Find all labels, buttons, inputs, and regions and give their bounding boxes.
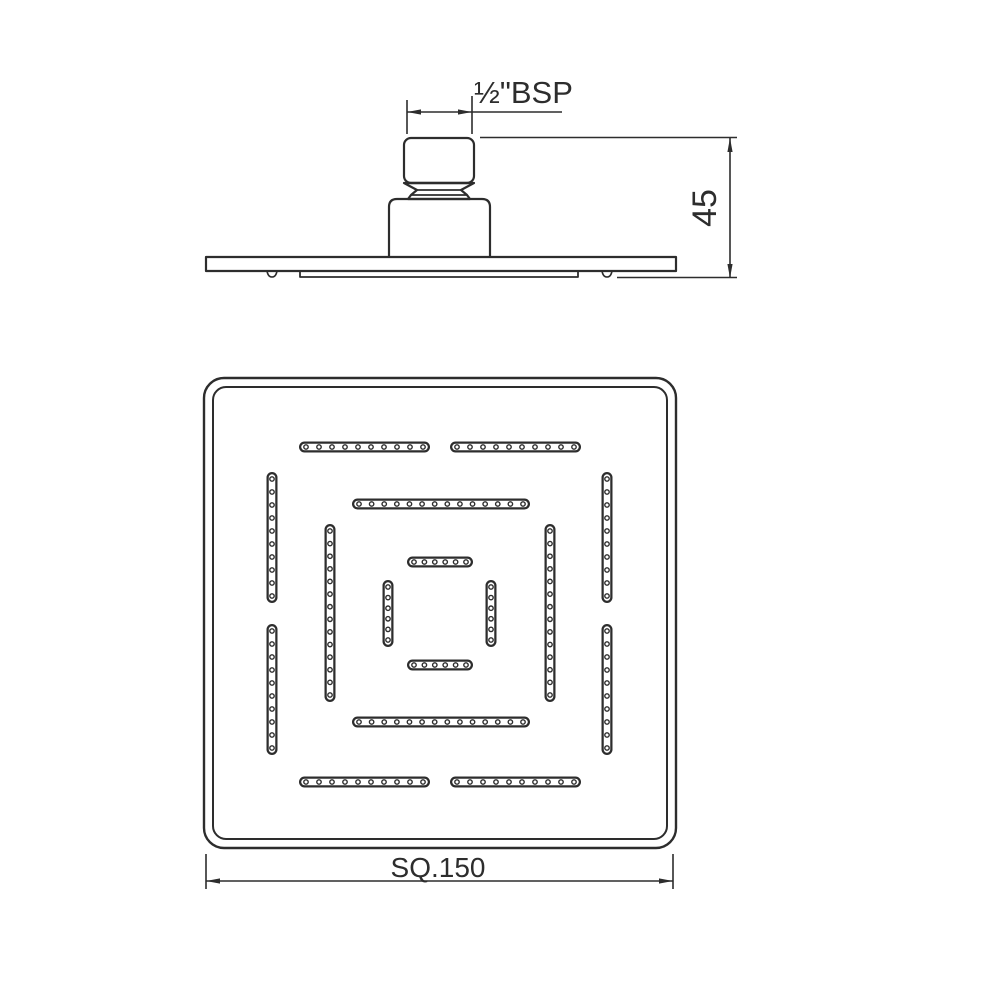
body-block <box>389 199 490 258</box>
nozzle-hole <box>468 445 472 449</box>
nozzle-hole <box>605 516 609 520</box>
nozzle-hole <box>489 638 493 642</box>
nozzle-hole <box>395 445 399 449</box>
nozzle-strip <box>605 629 609 750</box>
nozzle-hole <box>407 720 411 724</box>
nozzle-hole <box>508 502 512 506</box>
nozzle-strip <box>455 445 576 449</box>
nozzle-hole <box>605 694 609 698</box>
nozzle-hole <box>328 541 332 545</box>
nozzle-hole <box>270 720 274 724</box>
nozzle-hole <box>605 681 609 685</box>
nozzle-hole <box>270 668 274 672</box>
nozzle-strip <box>270 477 274 598</box>
nozzle-hole <box>443 663 447 667</box>
nozzle-hole <box>328 642 332 646</box>
nozzle-hole <box>433 663 437 667</box>
nozzle-hole <box>270 733 274 737</box>
nozzle-hole <box>422 663 426 667</box>
nozzle-hole <box>548 541 552 545</box>
width-arrow-left <box>206 878 220 883</box>
nozzle-hole <box>328 668 332 672</box>
nozzle-hole <box>489 585 493 589</box>
nozzle-hole <box>605 655 609 659</box>
nozzle-hole <box>507 780 511 784</box>
nozzle-hole <box>270 694 274 698</box>
drawing-page: ½"BSP 45 SQ.150 <box>0 0 1000 1000</box>
nozzle-hole <box>455 780 459 784</box>
nozzle-strip <box>412 663 468 667</box>
nozzle-hole <box>605 529 609 533</box>
nozzle-hole <box>343 780 347 784</box>
nozzle-hole <box>412 663 416 667</box>
nozzle-hole <box>605 503 609 507</box>
nozzle-hole <box>270 642 274 646</box>
nozzle-hole <box>605 477 609 481</box>
nozzle-hole <box>489 627 493 631</box>
nozzle-hole <box>548 579 552 583</box>
nozzle-hole <box>496 502 500 506</box>
nozzle-hole <box>548 617 552 621</box>
nozzle-hole <box>328 579 332 583</box>
nozzle-hole <box>382 780 386 784</box>
nozzle-hole <box>548 642 552 646</box>
nozzle-strip <box>386 585 390 642</box>
height-arrow-bottom <box>727 264 732 278</box>
nozzle-hole <box>270 529 274 533</box>
nozzle-hole <box>605 555 609 559</box>
nozzle-hole <box>386 585 390 589</box>
nozzle-hole <box>382 502 386 506</box>
nozzle-hole <box>270 477 274 481</box>
nozzle-strip <box>357 502 525 506</box>
nozzle-hole <box>605 733 609 737</box>
nozzle-hole <box>328 554 332 558</box>
nozzle-hole <box>408 780 412 784</box>
nozzle-hole <box>328 680 332 684</box>
nozzle-hole <box>508 720 512 724</box>
bsp-arrow-right <box>458 109 472 114</box>
nozzle-hole <box>270 503 274 507</box>
nozzle-hole <box>489 606 493 610</box>
bsp-arrow-left <box>407 109 421 114</box>
nozzle-hole <box>270 629 274 633</box>
nozzle-hole <box>483 502 487 506</box>
width-dimension: SQ.150 <box>206 852 673 889</box>
connector-waist <box>404 183 474 199</box>
nozzle-hole <box>470 502 474 506</box>
nozzle-hole <box>548 668 552 672</box>
nozzle-hole <box>481 445 485 449</box>
bsp-dimension: ½"BSP <box>407 75 573 134</box>
nozzle-hole <box>386 638 390 642</box>
nozzle-hole <box>605 746 609 750</box>
nozzle-hole <box>357 502 361 506</box>
nozzle-hole <box>605 594 609 598</box>
nozzle-hole <box>458 502 462 506</box>
nozzle-hole <box>270 746 274 750</box>
nozzle-hole <box>270 542 274 546</box>
nozzle-strip <box>605 477 609 598</box>
nozzle-hole <box>317 780 321 784</box>
nozzle-hole <box>605 581 609 585</box>
nozzle-hole <box>546 780 550 784</box>
face-plate-inner <box>213 387 667 839</box>
face-plate-outer <box>204 378 676 848</box>
nozzle-hole <box>520 780 524 784</box>
nozzle-hole <box>605 568 609 572</box>
nozzle-hole <box>464 663 468 667</box>
nozzle-hole <box>328 592 332 596</box>
nozzle-strip <box>328 529 332 697</box>
nozzle-hole <box>270 681 274 685</box>
plate-size-label: SQ.150 <box>391 852 486 883</box>
nozzle-hole <box>421 445 425 449</box>
nozzle-hole <box>386 606 390 610</box>
nozzle-hole <box>369 502 373 506</box>
nozzle-hole <box>605 720 609 724</box>
nozzle-pattern <box>270 445 609 784</box>
nozzle-hole <box>453 560 457 564</box>
nozzle-strip <box>455 780 576 784</box>
nozzle-hole <box>395 780 399 784</box>
nozzle-hole <box>433 560 437 564</box>
nozzle-hole <box>521 502 525 506</box>
nozzle-hole <box>605 668 609 672</box>
nozzle-hole <box>605 642 609 646</box>
nozzle-hole <box>328 617 332 621</box>
nozzle-hole <box>445 720 449 724</box>
nozzle-hole <box>605 629 609 633</box>
thread-connector <box>404 138 474 183</box>
nozzle-hole <box>494 445 498 449</box>
nozzle-hole <box>386 595 390 599</box>
nozzle-hole <box>420 502 424 506</box>
nozzle-strip <box>270 629 274 750</box>
nozzle-hole <box>328 604 332 608</box>
nozzle-hole <box>572 445 576 449</box>
height-arrow-top <box>727 138 732 152</box>
shower-head-technical-drawing: ½"BSP 45 SQ.150 <box>0 0 1000 1000</box>
nozzle-hole <box>304 445 308 449</box>
nozzle-strip <box>489 585 493 642</box>
nozzle-hole <box>559 445 563 449</box>
nozzle-hole <box>270 490 274 494</box>
nozzle-hole <box>470 720 474 724</box>
nozzle-hole <box>382 445 386 449</box>
nozzle-hole <box>382 720 386 724</box>
thread-size-label: ½"BSP <box>474 75 573 110</box>
nozzle-hole <box>369 445 373 449</box>
plan-view <box>204 378 676 848</box>
nozzle-hole <box>496 720 500 724</box>
nozzle-hole <box>407 502 411 506</box>
nozzle-hole <box>270 655 274 659</box>
nozzle-hole <box>494 780 498 784</box>
nozzle-hole <box>356 780 360 784</box>
nozzle-strip <box>357 720 525 724</box>
nozzle-hole <box>270 568 274 572</box>
nozzle-hole <box>412 560 416 564</box>
nozzle-hole <box>270 581 274 585</box>
face-plate-side <box>206 257 676 271</box>
nozzle-hole <box>548 592 552 596</box>
nozzle-strip <box>304 780 425 784</box>
nozzle-hole <box>548 655 552 659</box>
nozzle-hole <box>464 560 468 564</box>
nozzle-hole <box>548 604 552 608</box>
nozzle-hole <box>328 630 332 634</box>
nozzle-hole <box>548 554 552 558</box>
nozzle-strip <box>412 560 468 564</box>
nozzle-hole <box>533 445 537 449</box>
nozzle-hole <box>343 445 347 449</box>
nozzle-hole <box>356 445 360 449</box>
nozzle-hole <box>548 529 552 533</box>
width-arrow-right <box>659 878 673 883</box>
nozzle-strip <box>548 529 552 697</box>
nozzle-hole <box>386 627 390 631</box>
nozzle-hole <box>458 720 462 724</box>
nozzle-hole <box>432 720 436 724</box>
nozzle-hole <box>395 502 399 506</box>
nozzle-hole <box>572 780 576 784</box>
nozzle-hole <box>369 780 373 784</box>
nozzle-hole <box>357 720 361 724</box>
nozzle-hole <box>548 630 552 634</box>
side-view <box>206 138 676 277</box>
nozzle-hole <box>520 445 524 449</box>
nozzle-hole <box>270 555 274 559</box>
nozzle-hole <box>304 780 308 784</box>
nozzle-hole <box>328 567 332 571</box>
nozzle-hole <box>270 594 274 598</box>
nozzle-hole <box>507 445 511 449</box>
nozzle-hole <box>559 780 563 784</box>
nozzle-hole <box>546 445 550 449</box>
nozzle-strip <box>304 445 425 449</box>
nozzle-hole <box>548 693 552 697</box>
nozzle-hole <box>445 502 449 506</box>
nozzle-hole <box>328 693 332 697</box>
nozzle-hole <box>605 542 609 546</box>
nozzle-hole <box>369 720 373 724</box>
nozzle-hole <box>328 655 332 659</box>
nozzle-hole <box>453 663 457 667</box>
nozzle-hole <box>605 490 609 494</box>
nozzle-hole <box>328 529 332 533</box>
nozzle-hole <box>489 595 493 599</box>
nozzle-hole <box>432 502 436 506</box>
nozzle-hole <box>330 445 334 449</box>
nozzle-hole <box>455 445 459 449</box>
nozzle-hole <box>548 680 552 684</box>
nozzle-hole <box>443 560 447 564</box>
nozzle-hole <box>270 516 274 520</box>
nozzle-hole <box>386 617 390 621</box>
nozzle-hole <box>317 445 321 449</box>
nozzle-hole <box>422 560 426 564</box>
nozzle-hole <box>408 445 412 449</box>
nozzle-hole <box>489 617 493 621</box>
nozzle-hole <box>521 720 525 724</box>
nozzle-hole <box>420 720 424 724</box>
nozzle-hole <box>421 780 425 784</box>
nozzle-hole <box>548 567 552 571</box>
nozzle-hole <box>468 780 472 784</box>
nozzle-hole <box>533 780 537 784</box>
nozzle-hole <box>330 780 334 784</box>
height-value-label: 45 <box>686 189 724 227</box>
nozzle-hole <box>483 720 487 724</box>
nozzle-hole <box>395 720 399 724</box>
nozzle-hole <box>270 707 274 711</box>
nozzle-hole <box>481 780 485 784</box>
nozzle-hole <box>605 707 609 711</box>
